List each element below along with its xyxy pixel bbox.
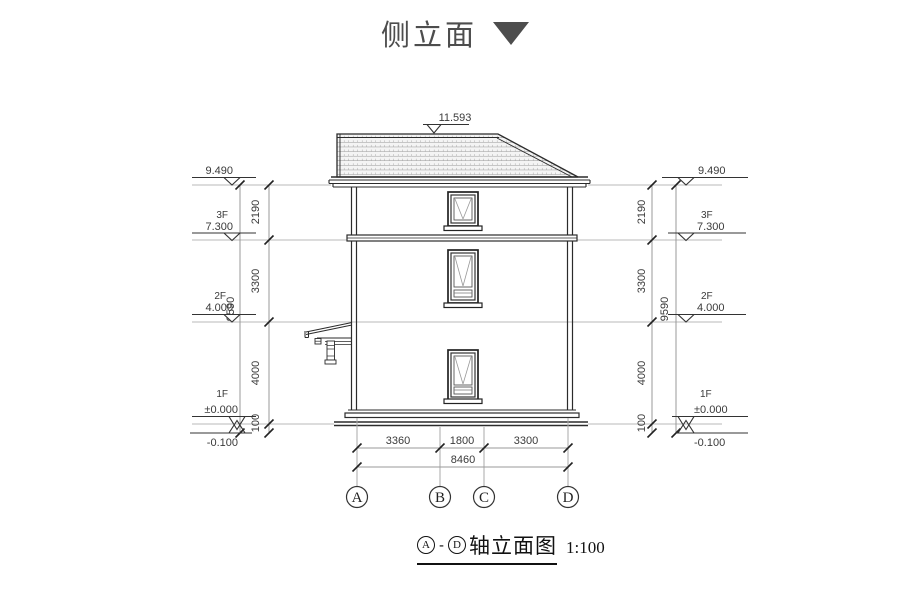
f3-elevation-left: 7.300	[205, 221, 233, 233]
dim-span-ab: 3360	[386, 435, 410, 447]
f1-elevation-left: ±0.000	[204, 404, 238, 416]
f3-label-right: 3F	[701, 210, 713, 221]
dim-span-bc: 1800	[450, 435, 474, 447]
f2-label-right: 2F	[701, 291, 713, 302]
plinth	[345, 410, 579, 418]
window-3f	[444, 192, 482, 231]
caption-scale: 1:100	[566, 538, 605, 558]
entrance-canopy	[305, 323, 352, 365]
ground-elevation-right: -0.100	[694, 437, 725, 449]
eave-cornice	[329, 177, 590, 187]
dim-3300-right: 3300	[636, 269, 648, 293]
ground-line	[334, 422, 588, 426]
f2-elevation-right: 4.000	[697, 302, 725, 314]
f3-elevation-right: 7.300	[697, 221, 725, 233]
bottom-dimension-lines: 3360 1800 3300 8460	[353, 418, 573, 486]
f3-label-left: 3F	[216, 210, 228, 221]
dim-span-cd: 3300	[514, 435, 538, 447]
left-elevation-markers: 9.490 3F 7.300 2F 4.000 1F ±0.000 -0.100	[190, 165, 256, 449]
dim-span-total: 8460	[451, 454, 475, 466]
roof	[337, 134, 578, 177]
elevation-drawing-page: 侧立面 11.59	[0, 0, 910, 612]
f2-elevation-left: 4.000	[205, 302, 233, 314]
eave-elevation-right: 9.490	[698, 165, 726, 177]
dim-9590-right: 9590	[659, 297, 671, 321]
window-1f	[444, 350, 482, 404]
axis-bubbles: A B C D	[347, 487, 579, 508]
dim-2190-right: 2190	[636, 200, 648, 224]
axis-bubble-b: B	[435, 490, 445, 506]
f1-label-right: 1F	[700, 389, 712, 400]
f1-elevation-right: ±0.000	[694, 404, 728, 416]
belt-course	[347, 235, 577, 241]
axis-bubble-a: A	[352, 490, 363, 506]
dim-4000-right: 4000	[636, 361, 648, 385]
ridge-elevation-marker: 11.593	[423, 112, 471, 133]
dim-100-right: 100	[636, 414, 648, 432]
dim-3300-left: 3300	[250, 269, 262, 293]
caption-dash: -	[439, 537, 444, 554]
right-dimension-chain: 2190 3300 4000 100 9590	[636, 181, 681, 438]
dim-2190-left: 2190	[250, 200, 262, 224]
ridge-elevation-value: 11.593	[439, 112, 472, 124]
elevation-drawing: 11.593	[0, 0, 910, 612]
drawing-caption: A - D 轴立面图 1:100	[417, 530, 605, 565]
caption-axis-to: D	[448, 536, 466, 554]
window-2f	[444, 250, 482, 308]
caption-axis-from: A	[417, 536, 435, 554]
right-elevation-markers: 9.490 3F 7.300 2F 4.000 1F ±0.000 -0.100	[662, 165, 748, 449]
dim-4000-left: 4000	[250, 361, 262, 385]
ground-elevation-left: -0.100	[207, 437, 238, 449]
axis-bubble-d: D	[563, 490, 574, 506]
caption-text: 轴立面图	[469, 530, 557, 560]
eave-elevation-left: 9.490	[205, 165, 233, 177]
f2-label-left: 2F	[214, 291, 226, 302]
caption-underlined-part: A - D 轴立面图	[417, 530, 557, 565]
f1-label-left: 1F	[216, 389, 228, 400]
axis-bubble-c: C	[479, 490, 489, 506]
